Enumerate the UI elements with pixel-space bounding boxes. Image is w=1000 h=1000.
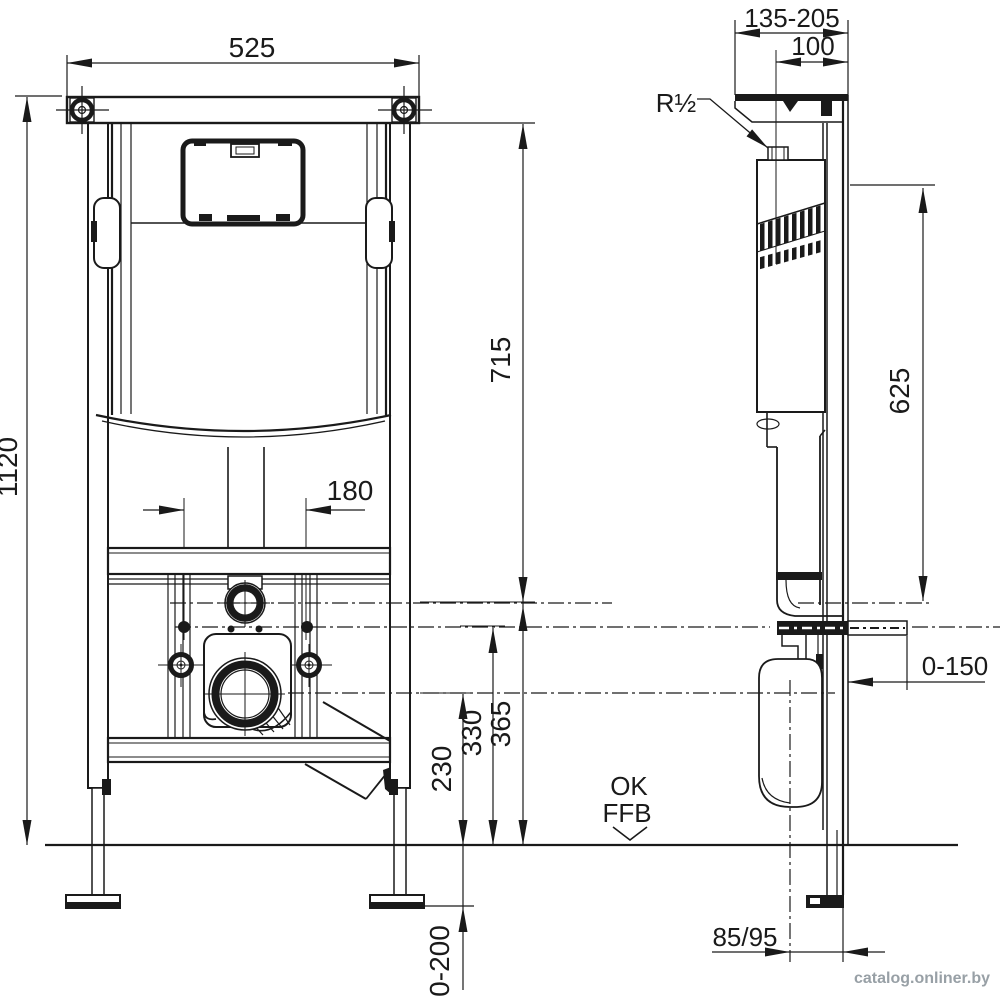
dim-label-1120: 1120	[0, 437, 23, 497]
right-side-clip	[366, 198, 392, 268]
top-wall-bracket	[735, 94, 848, 122]
dim-label-100: 100	[791, 31, 834, 61]
dim-label-85-95: 85/95	[712, 922, 777, 952]
dim-label-0-150: 0-150	[922, 651, 989, 681]
left-threaded-boss-icon	[158, 644, 204, 687]
floor-label-ffb: FFB	[602, 798, 651, 828]
left-foot-pad	[66, 902, 120, 908]
left-side-clip	[94, 198, 120, 268]
cistern-side	[757, 160, 825, 412]
dim-label-525: 525	[229, 32, 276, 63]
dim-label-r-half: R½	[656, 88, 696, 118]
supply-stub	[768, 147, 788, 160]
right-foot-pad	[370, 902, 424, 908]
left-inner-leg	[92, 788, 104, 895]
dimension-annotations: 525 1120 180 715 365 330	[0, 3, 988, 997]
watermark: catalog.onliner.by	[854, 970, 990, 987]
top-rail	[67, 97, 419, 123]
dim-label-625: 625	[884, 368, 915, 415]
left-leg-clip	[102, 779, 111, 795]
dim-label-715: 715	[485, 337, 516, 384]
dim-label-180: 180	[327, 475, 374, 506]
access-window	[183, 141, 303, 224]
technical-drawing: OK FFB 525 1120 180 715 365	[0, 0, 1000, 1000]
flush-elbow	[777, 580, 843, 616]
right-inner-leg	[394, 788, 406, 895]
bottom-rail	[108, 738, 390, 762]
dim-label-365: 365	[485, 701, 516, 748]
floor-level-icon	[613, 827, 647, 840]
side-view	[735, 50, 907, 908]
dim-label-230: 230	[426, 746, 457, 793]
dim-label-0-200: 0-200	[424, 925, 455, 997]
floor-label-ok: OK	[610, 771, 648, 801]
front-view-lower-assembly	[108, 498, 391, 799]
right-threaded-boss-icon	[286, 644, 332, 687]
dim-label-135-205: 135-205	[744, 3, 839, 33]
mid-rail	[108, 548, 390, 574]
